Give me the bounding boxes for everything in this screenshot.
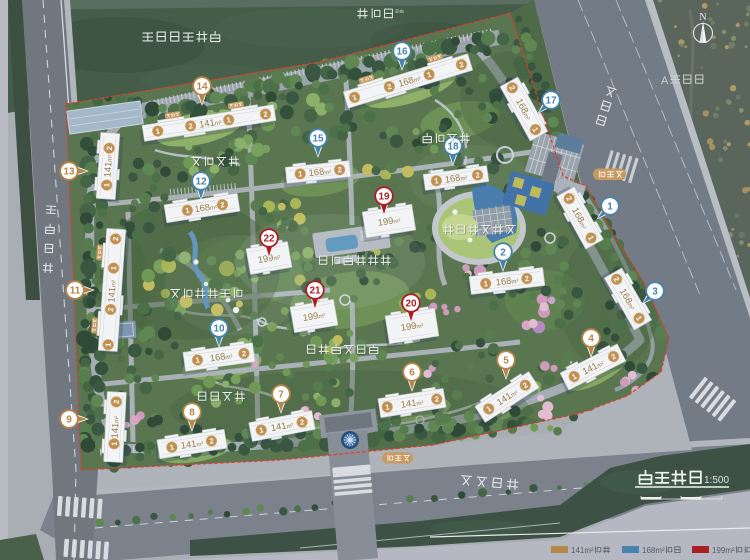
svg-text:141m²: 141m² [571,546,594,555]
svg-text:7: 7 [278,390,284,401]
svg-text:1: 1 [104,342,113,347]
svg-text:10: 10 [213,324,225,335]
svg-text:2: 2 [106,307,115,312]
svg-text:2: 2 [111,236,120,241]
svg-text:11: 11 [70,286,81,297]
svg-text:2: 2 [500,248,506,259]
svg-text:N: N [699,12,706,23]
svg-text:1: 1 [102,183,111,188]
svg-text:22: 22 [263,234,275,245]
svg-text:1:500: 1:500 [704,475,729,486]
svg-text:6: 6 [409,368,415,379]
svg-text:A: A [661,75,669,87]
svg-text:8: 8 [189,408,195,419]
svg-text:14: 14 [196,82,208,93]
svg-text:17: 17 [545,96,557,107]
svg-text:9: 9 [66,415,72,426]
svg-text:15: 15 [312,134,324,145]
svg-text:12: 12 [195,177,207,188]
svg-text:1: 1 [109,266,118,271]
svg-text:168m²: 168m² [642,546,665,555]
svg-text:19: 19 [378,192,390,203]
svg-text:18: 18 [447,142,459,153]
svg-text:20: 20 [405,299,417,310]
svg-text:2: 2 [105,146,114,151]
svg-text:2: 2 [112,400,121,405]
svg-text:21: 21 [309,286,321,297]
svg-text:5: 5 [503,356,509,367]
svg-text:199m²: 199m² [712,546,735,555]
svg-text:4: 4 [588,334,594,345]
svg-text:3: 3 [652,287,658,298]
svg-text:1: 1 [110,441,119,446]
svg-text:16: 16 [396,47,408,58]
svg-text:13: 13 [63,167,75,178]
svg-text:1: 1 [607,202,613,213]
